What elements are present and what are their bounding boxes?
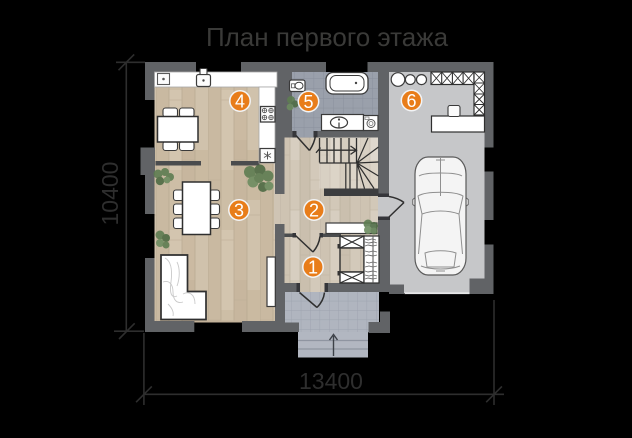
svg-text:План первого этажа: План первого этажа [206, 22, 449, 52]
svg-text:5: 5 [303, 92, 313, 112]
svg-text:6: 6 [406, 91, 416, 111]
svg-text:2: 2 [309, 200, 319, 220]
svg-text:4: 4 [235, 91, 245, 111]
svg-text:1: 1 [308, 257, 318, 277]
svg-text:3: 3 [234, 200, 244, 220]
svg-text:13400: 13400 [299, 368, 363, 394]
svg-text:10400: 10400 [97, 162, 123, 226]
